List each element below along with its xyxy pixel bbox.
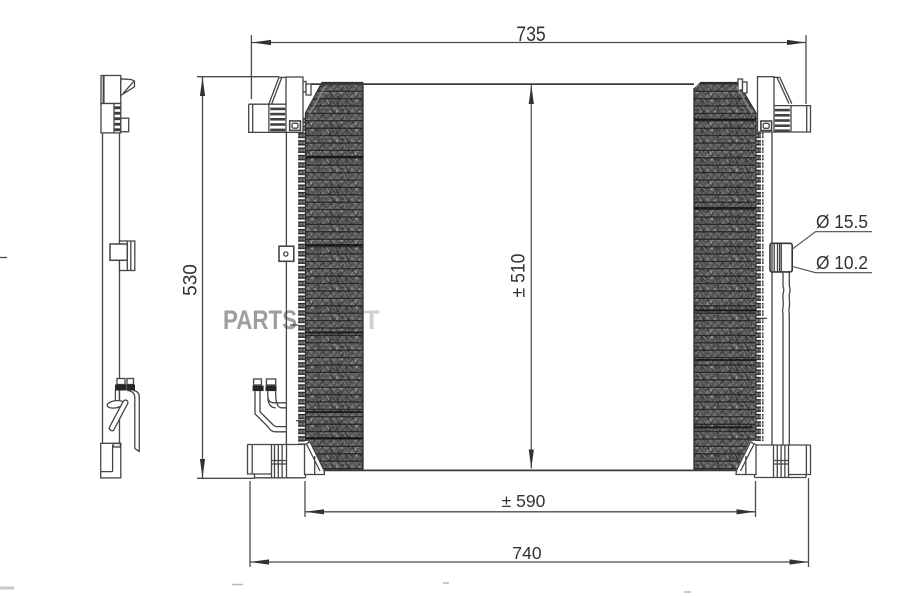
svg-text:Ø 10.2: Ø 10.2 — [816, 253, 868, 273]
svg-text:740: 740 — [512, 543, 541, 563]
svg-text:± 590: ± 590 — [502, 491, 546, 511]
svg-text:T: T — [364, 305, 380, 335]
svg-text:Ø 15.5: Ø 15.5 — [816, 212, 868, 232]
svg-text:530: 530 — [181, 264, 202, 296]
svg-text:± 510: ± 510 — [509, 254, 530, 298]
svg-text:735: 735 — [516, 23, 546, 46]
